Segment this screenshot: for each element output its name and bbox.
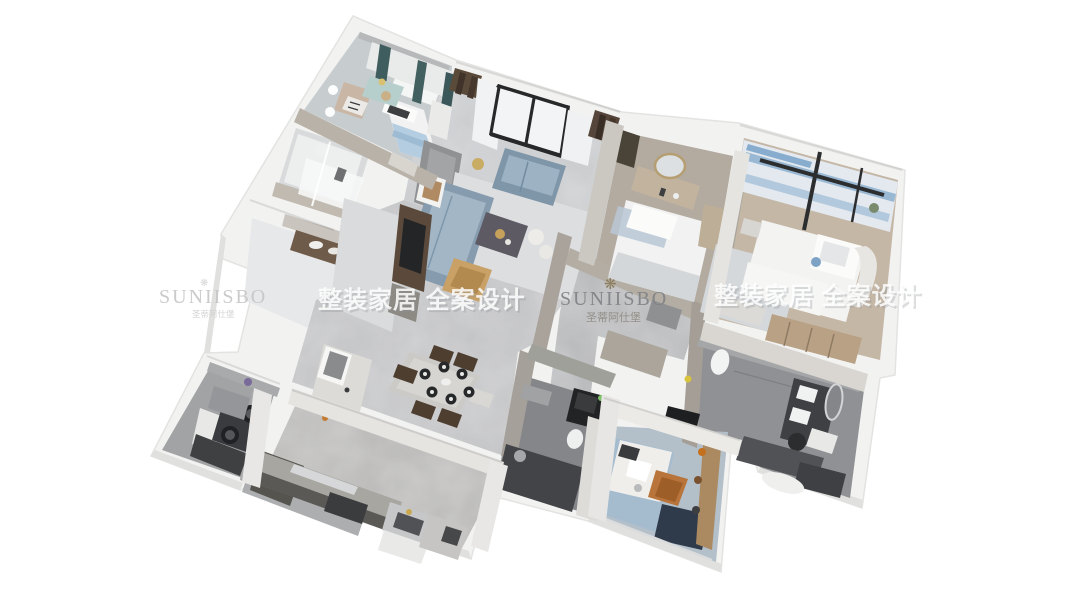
svg-text:圣蒂阿仕堡: 圣蒂阿仕堡 <box>192 309 235 319</box>
svg-text:❋: ❋ <box>200 278 208 289</box>
svg-text:SUNIISBO: SUNIISBO <box>159 286 267 308</box>
svg-text:整装家居 全案设计: 整装家居 全案设计 <box>714 282 922 310</box>
svg-text:整装家居 全案设计: 整装家居 全案设计 <box>318 286 526 314</box>
svg-text:圣蒂阿仕堡: 圣蒂阿仕堡 <box>586 310 641 324</box>
svg-text:❋: ❋ <box>604 276 617 293</box>
